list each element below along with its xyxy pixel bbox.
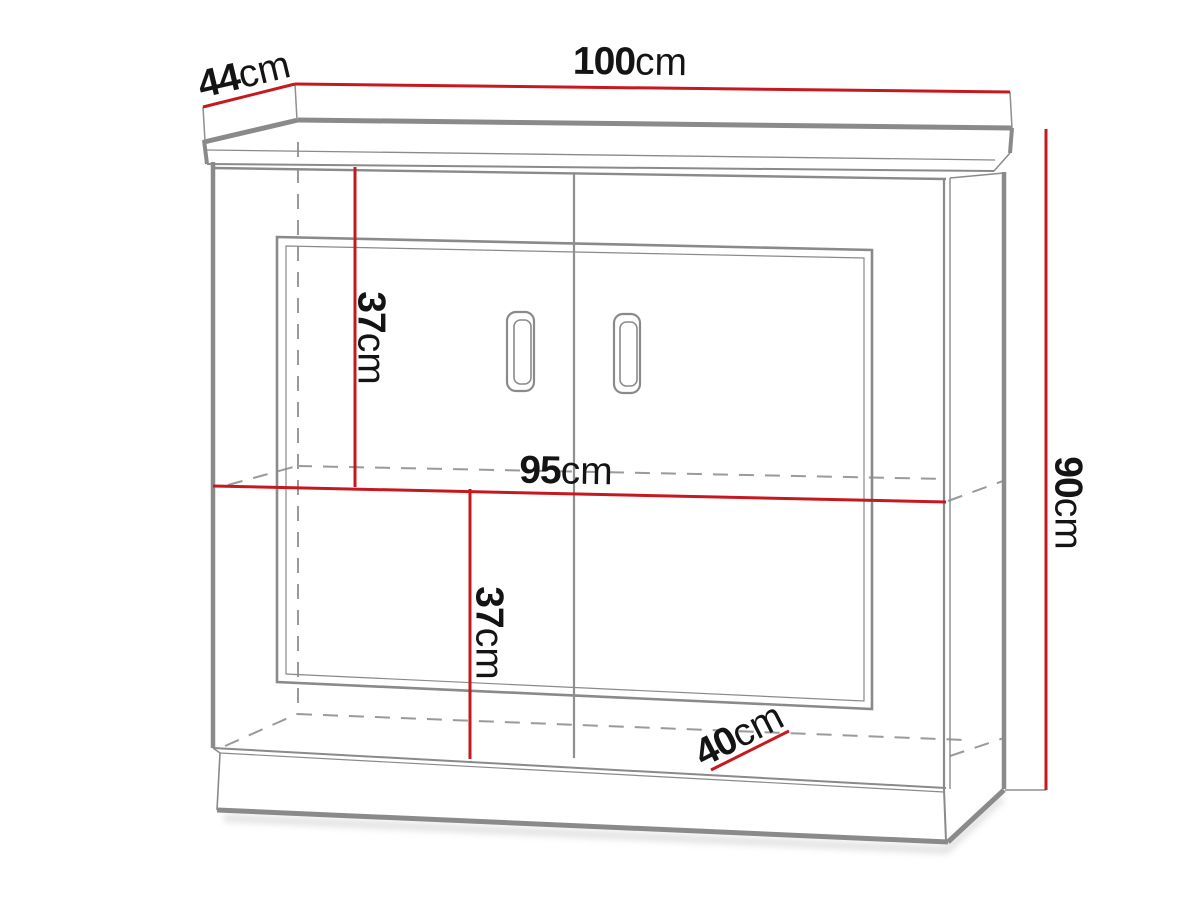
dimension-label-lower-compartment: 37cm [470, 586, 509, 679]
dimension-value: 100 [573, 40, 636, 84]
dimension-label-total-height: 90cm [1049, 456, 1088, 549]
dimension-value: 95 [519, 449, 561, 493]
dimension-diagram: 44cm 100cm 90cm 37cm 95cm 37cm 40cm [0, 0, 1200, 900]
dimension-unit: cm [560, 449, 613, 493]
door-handle-left [507, 312, 534, 391]
dimension-value: 37 [350, 291, 393, 332]
dimension-label-total-width: 100cm [573, 42, 688, 82]
dimension-value: 37 [468, 586, 511, 627]
dimension-label-upper-compartment: 37cm [352, 291, 391, 384]
hidden-edges [225, 142, 1004, 756]
dim-line-total-width-100 [295, 84, 1010, 92]
dimension-unit: cm [635, 41, 688, 85]
dimension-unit: cm [1047, 498, 1090, 550]
door-handle-right [614, 314, 640, 393]
dimension-value: 90 [1047, 456, 1090, 497]
floor-shadow [224, 798, 1002, 850]
dimension-unit: cm [468, 628, 511, 680]
dimension-label-interior-width: 95cm [519, 451, 613, 492]
dimension-unit: cm [350, 333, 393, 385]
top-panel [204, 120, 1012, 171]
